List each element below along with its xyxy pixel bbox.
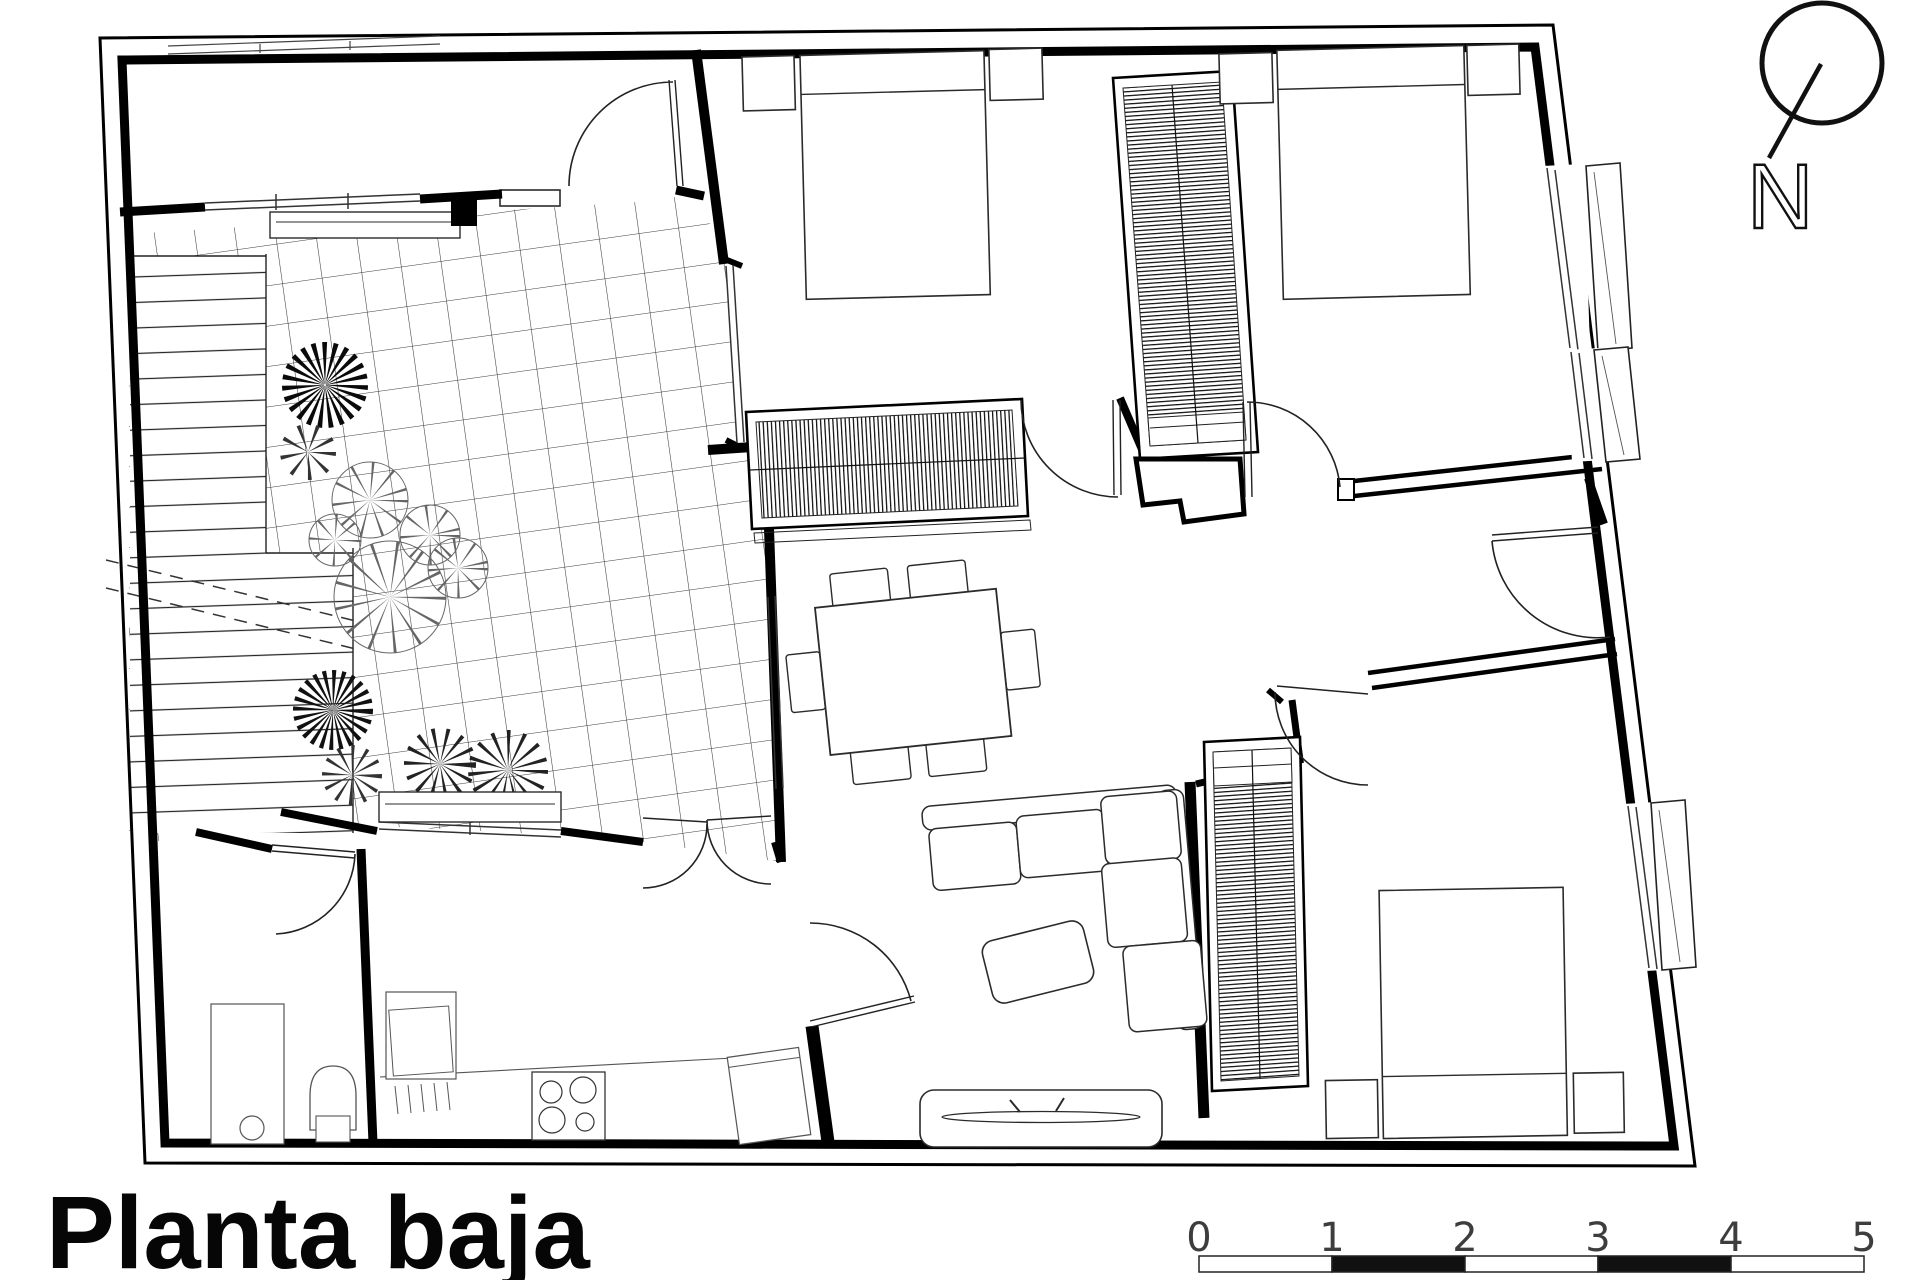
sofa-cushion <box>1016 809 1109 878</box>
floor-plan-canvas: N 0 1 2 3 4 5 Planta baja <box>0 0 1920 1280</box>
bedroom3-wardrobe <box>1204 737 1308 1091</box>
scale-label-0: 0 <box>1186 1215 1211 1261</box>
floor-plan-page: N 0 1 2 3 4 5 Planta baja <box>0 0 1920 1280</box>
nightstand <box>1573 1072 1624 1133</box>
bathroom-door <box>272 845 355 934</box>
sofa-cushion <box>928 822 1021 891</box>
palm-plant-icon <box>313 690 353 730</box>
scale-bar: 0 1 2 3 4 5 <box>1186 1215 1876 1272</box>
coffee-table <box>980 918 1096 1005</box>
hall-vestibule-door <box>1492 527 1610 638</box>
wall-sill <box>500 190 560 206</box>
stair-flight-lower <box>130 553 353 833</box>
nightstand <box>1219 53 1273 104</box>
scale-label-1: 1 <box>1319 1215 1344 1261</box>
scale-label-3: 3 <box>1585 1215 1610 1261</box>
bedrooms-closet-strip <box>1113 71 1258 522</box>
scale-label-4: 4 <box>1718 1215 1743 1261</box>
scale-segment <box>1731 1256 1864 1272</box>
north-label: N <box>1747 146 1813 248</box>
stair-flight-upper <box>130 256 266 553</box>
bed <box>1277 46 1470 300</box>
nightstand <box>1467 44 1520 95</box>
bedroom3-window <box>1623 800 1696 972</box>
bedroom2-furniture <box>1219 44 1525 301</box>
bedroom1-furniture <box>742 48 1048 301</box>
compass-circle-icon <box>1762 3 1882 123</box>
nightstand <box>989 48 1043 100</box>
bedroom1-door <box>1021 400 1121 497</box>
bedroom2-window-1 <box>1542 163 1632 352</box>
nightstand <box>1325 1080 1378 1139</box>
sofa-chaise <box>1122 940 1207 1032</box>
storage-room-window <box>205 193 420 210</box>
compass-needle-icon <box>1769 64 1821 158</box>
bedroom2-window-2 <box>1566 347 1640 462</box>
appliance-grille <box>395 1082 450 1114</box>
scale-segment <box>1465 1256 1598 1272</box>
bedroom1-wardrobe <box>746 399 1031 543</box>
planter-box <box>270 212 460 238</box>
nightstand <box>742 56 795 111</box>
closet-end-wall <box>1136 459 1244 522</box>
scale-label-5: 5 <box>1851 1215 1876 1261</box>
storage-room-door <box>569 80 683 186</box>
living-room-door <box>810 923 915 1027</box>
north-arrow: N <box>1747 3 1882 248</box>
tv-console <box>920 1090 1162 1147</box>
kitchen-fixtures <box>380 992 811 1145</box>
scale-segment <box>1598 1256 1731 1272</box>
dining-set <box>778 553 1049 790</box>
scale-label-2: 2 <box>1452 1215 1477 1261</box>
dishwasher <box>727 1047 811 1144</box>
scale-segment <box>1332 1256 1465 1272</box>
bathroom-fixtures <box>211 1004 356 1144</box>
page-title: Planta baja <box>46 1175 591 1280</box>
bed <box>1379 887 1567 1138</box>
sofa-corner <box>1100 790 1182 864</box>
sink-icon <box>240 1116 264 1140</box>
street-window-band <box>168 36 440 54</box>
sofa <box>921 784 1207 1051</box>
bed <box>800 51 990 300</box>
tv-icon <box>942 1112 1140 1123</box>
planter-box <box>379 792 561 822</box>
dining-table <box>815 589 1011 755</box>
facade-windows <box>1542 163 1696 972</box>
bedroom3-furniture <box>1322 886 1624 1139</box>
patio <box>100 180 820 880</box>
sofa-cushion <box>1101 857 1188 948</box>
scale-segment <box>1199 1256 1332 1272</box>
stove <box>532 1072 605 1140</box>
